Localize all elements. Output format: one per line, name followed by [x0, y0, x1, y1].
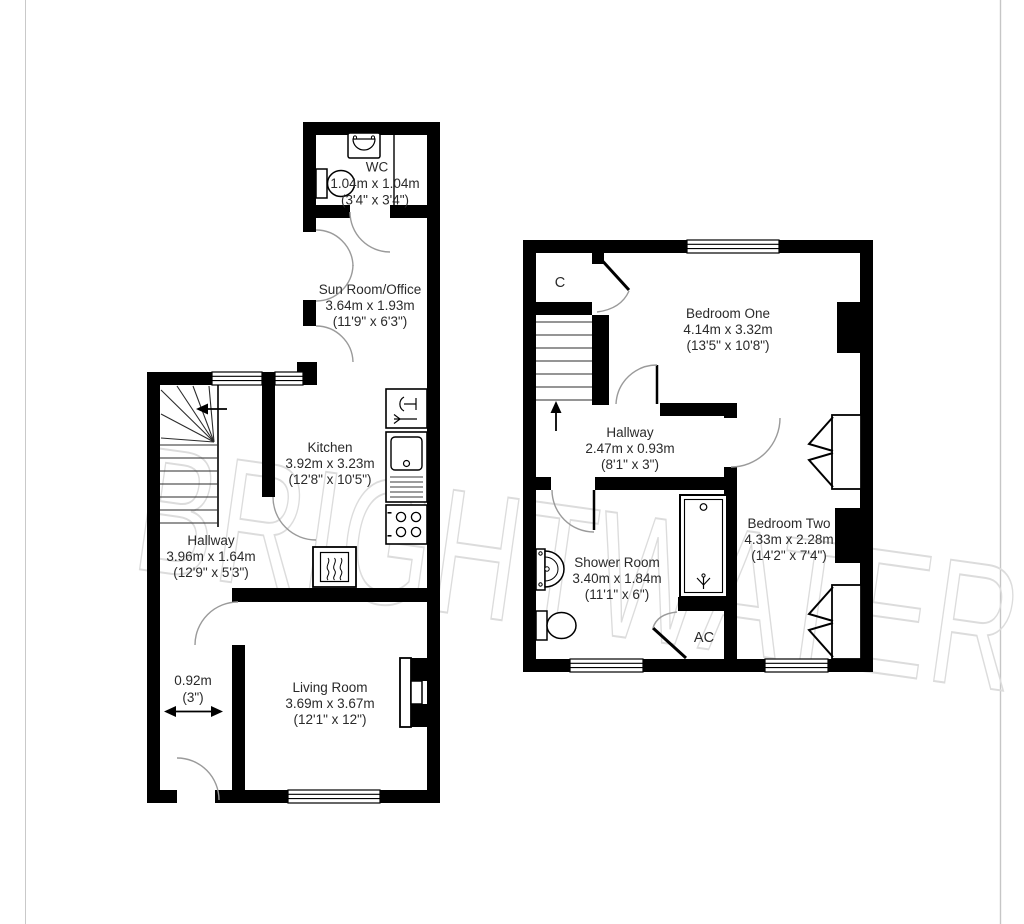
stairs-up-arrow	[551, 401, 562, 431]
room-label-wc: WC	[366, 160, 389, 175]
hallway-window	[212, 372, 262, 385]
bedroom-one-door	[616, 365, 657, 404]
sunroom-door-arc	[316, 326, 353, 362]
oven-unit	[313, 547, 356, 587]
front-door-arc	[177, 758, 219, 800]
room-dim-wc-imperial: (3'4" x 3'4")	[341, 193, 409, 208]
room-label-kitchen: Kitchen	[307, 440, 352, 455]
bedroom-two-window	[765, 659, 828, 672]
room-dim-bedroom-two-imperial: (14'2" x 7'4")	[751, 548, 827, 563]
bedroom-two-door-arc	[731, 418, 780, 467]
kitchen-sink	[386, 432, 427, 502]
room-dim-living-room-metric: 3.69m x 3.67m	[285, 696, 374, 711]
wc-basin	[348, 133, 380, 158]
room-dim-hallway-ground-metric: 3.96m x 1.64m	[166, 549, 255, 564]
floorplan-image: BRIGHTWATER	[0, 0, 1024, 924]
dishwasher-unit	[386, 389, 427, 428]
room-label-hallway-ground: Hallway	[187, 533, 235, 548]
floorplan-page: BRIGHTWATER	[0, 0, 1024, 924]
room-dim-kitchen-metric: 3.92m x 3.23m	[285, 456, 374, 471]
room-dim-bedroom-one-metric: 4.14m x 3.32m	[683, 322, 772, 337]
wardrobe-top	[809, 415, 861, 489]
room-dim-hallway-ground-imperial: (12'9" x 5'3")	[173, 565, 249, 580]
shower-room-window	[570, 659, 643, 672]
room-dim-shower-room-imperial: (11'1" x 6")	[585, 587, 649, 602]
bedroom-one-window	[687, 240, 779, 253]
room-label-shower-room: Shower Room	[574, 555, 660, 570]
kitchen-hob	[386, 505, 427, 544]
shower-room-toilet	[536, 611, 576, 640]
living-room-window	[288, 790, 380, 803]
airing-cupboard-label: AC	[694, 630, 714, 646]
room-label-bedroom-one: Bedroom One	[686, 306, 770, 321]
kitchen-window	[275, 372, 303, 385]
room-dim-living-room-imperial: (12'1" x 12")	[294, 712, 367, 727]
room-dim-kitchen-imperial: (12'8" x 10'5")	[288, 472, 371, 487]
room-dim-sunroom-metric: 3.64m x 1.93m	[325, 298, 414, 313]
room-label-sunroom: Sun Room/Office	[319, 282, 422, 297]
first-floor-stairs	[536, 322, 592, 431]
living-room-fireplace	[400, 658, 427, 727]
hallway-width-annotation: 0.92m (3")	[164, 673, 223, 717]
room-dim-hallway-first-metric: 2.47m x 0.93m	[585, 441, 674, 456]
sunroom-french-door-top-arc	[316, 230, 353, 266]
room-label-bedroom-two: Bedroom Two	[747, 516, 830, 531]
room-dim-sunroom-imperial: (11'9" x 6'3")	[333, 314, 408, 329]
wc-door-arc	[350, 212, 390, 252]
room-label-living-room: Living Room	[292, 680, 367, 695]
room-dim-wc-metric: 1.04m x 1.04m	[330, 176, 419, 191]
width-dim-imperial: (3")	[182, 690, 203, 705]
room-label-hallway-first: Hallway	[606, 425, 654, 440]
cupboard-label: C	[555, 275, 565, 291]
shower-enclosure	[680, 495, 727, 597]
room-dim-hallway-first-imperial: (8'1" x 3")	[601, 457, 659, 472]
room-dim-bedroom-two-metric: 4.33m x 2.28m	[744, 532, 833, 547]
room-dim-shower-room-metric: 3.40m x 1.84m	[572, 571, 661, 586]
width-dim-metric: 0.92m	[174, 673, 212, 688]
room-dim-bedroom-one-imperial: (13'5" x 10'8")	[686, 338, 769, 353]
cupboard-door	[597, 256, 629, 312]
